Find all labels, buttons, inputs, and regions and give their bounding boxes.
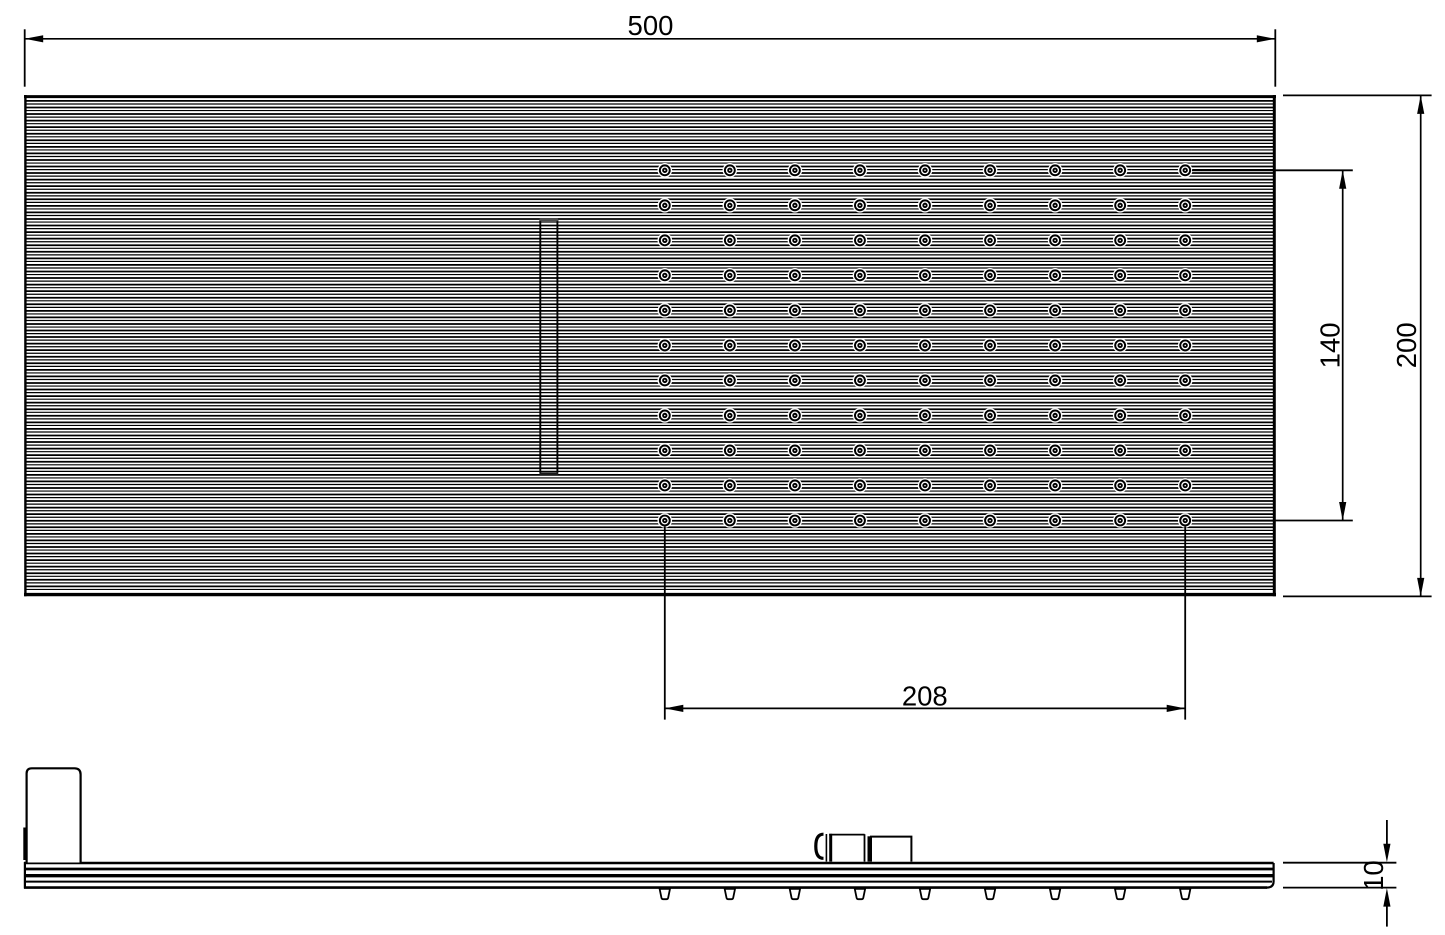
svg-text:140: 140 xyxy=(1314,322,1345,368)
svg-text:10: 10 xyxy=(1358,860,1389,891)
svg-text:200: 200 xyxy=(1391,322,1422,368)
svg-text:208: 208 xyxy=(902,680,948,711)
svg-text:500: 500 xyxy=(628,10,674,41)
